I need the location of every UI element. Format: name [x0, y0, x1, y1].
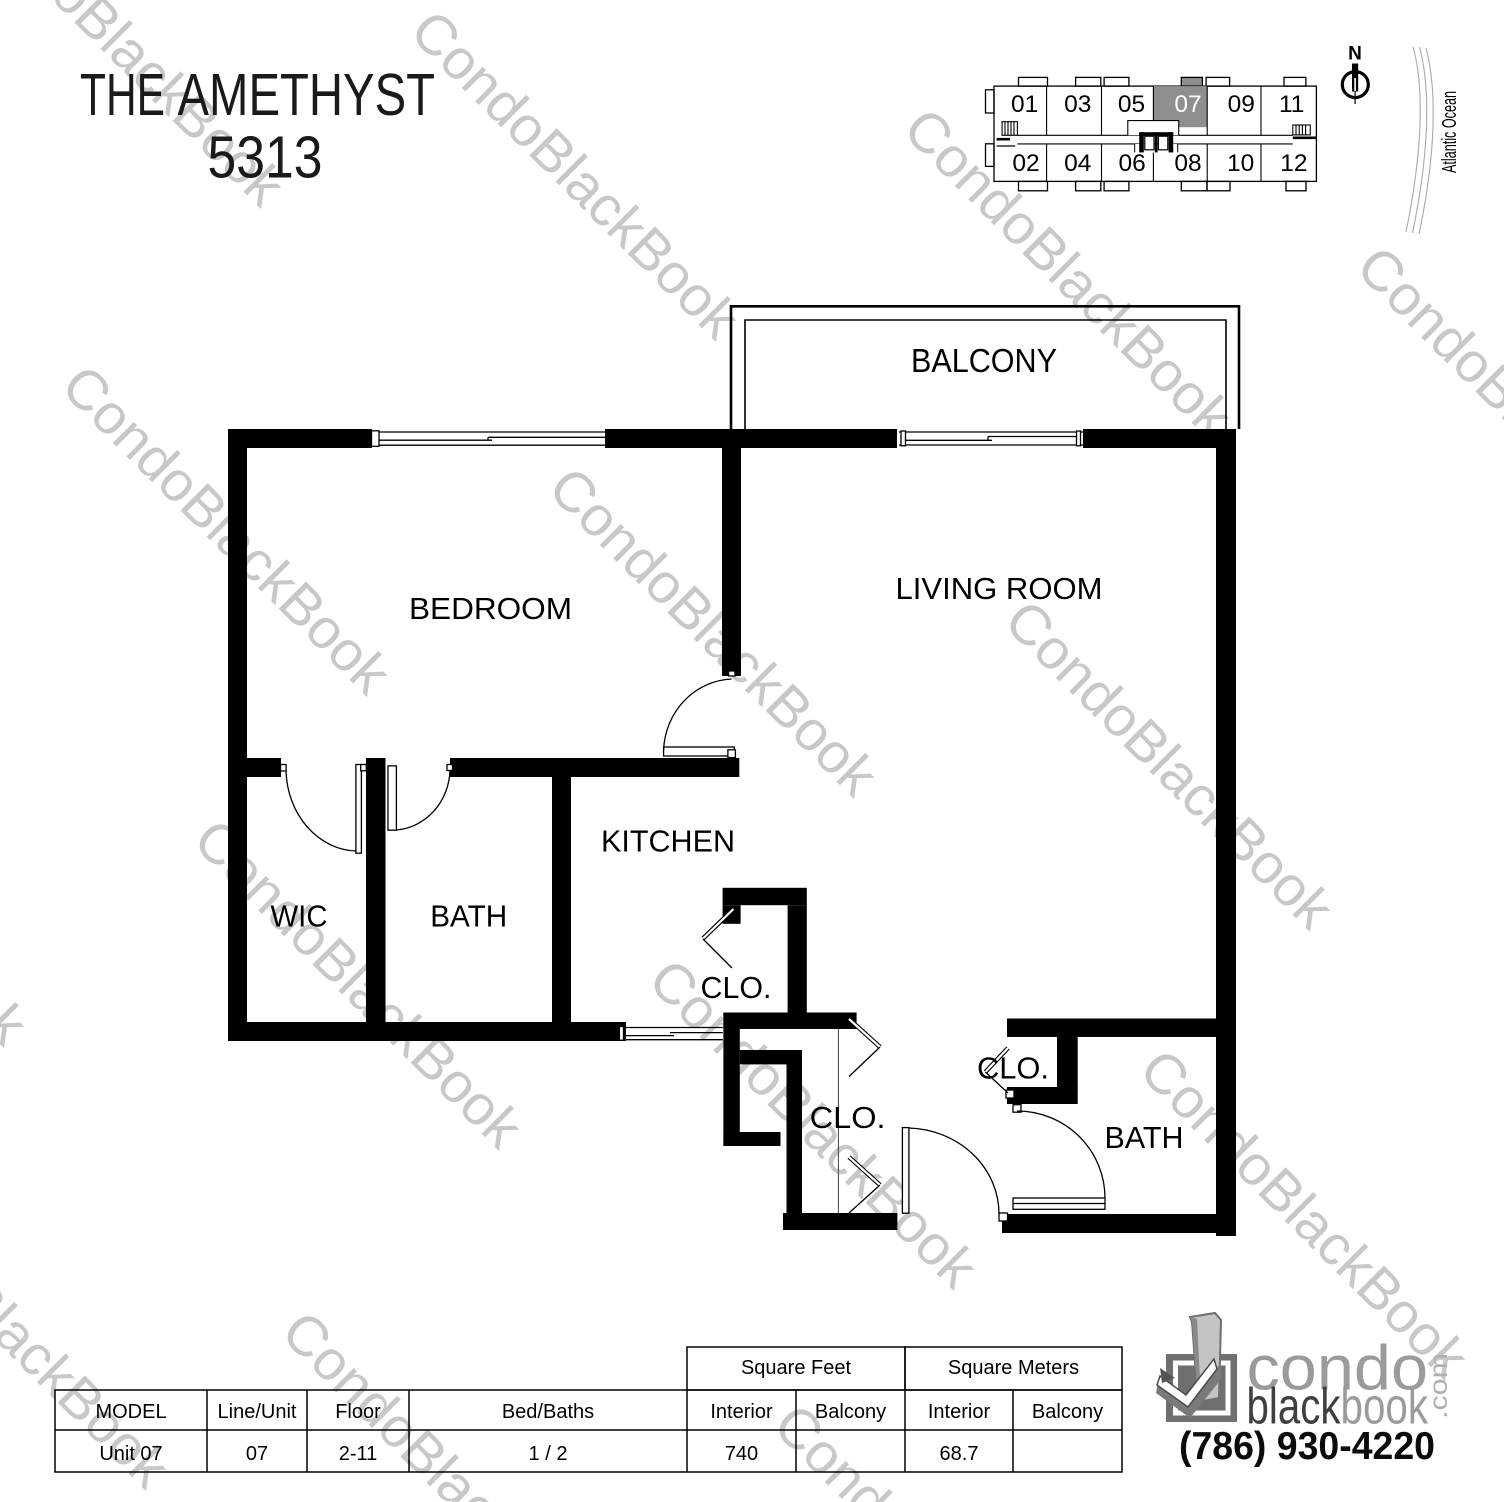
svg-text:01: 01: [1011, 91, 1038, 118]
svg-text:AMETHYST: AMETHYST: [178, 62, 436, 128]
svg-text:12: 12: [1280, 150, 1307, 177]
svg-text:Balcony: Balcony: [1032, 1401, 1103, 1423]
svg-text:THE: THE: [80, 62, 165, 128]
svg-text:11: 11: [1279, 91, 1304, 118]
svg-text:07: 07: [246, 1443, 268, 1465]
svg-text:CLO.: CLO.: [701, 970, 772, 1005]
svg-text:740: 740: [725, 1443, 758, 1465]
svg-text:06: 06: [1118, 150, 1145, 177]
svg-text:CLO.: CLO.: [977, 1051, 1049, 1086]
svg-text:04: 04: [1064, 150, 1091, 177]
svg-text:Atlantic Ocean: Atlantic Ocean: [1439, 91, 1461, 173]
svg-text:BEDROOM: BEDROOM: [409, 591, 572, 626]
svg-text:Unit 07: Unit 07: [99, 1443, 162, 1465]
svg-text:2-11: 2-11: [339, 1443, 378, 1465]
svg-text:Square Feet: Square Feet: [741, 1357, 852, 1379]
svg-text:BATH: BATH: [430, 899, 507, 934]
svg-text:MODEL: MODEL: [95, 1401, 166, 1423]
svg-text:.com: .com: [1425, 1353, 1453, 1419]
svg-text:LIVING ROOM: LIVING ROOM: [896, 571, 1103, 606]
svg-text:02: 02: [1012, 150, 1039, 177]
svg-text:BATH: BATH: [1105, 1120, 1184, 1155]
svg-text:(786) 930-4220: (786) 930-4220: [1179, 1425, 1435, 1468]
svg-text:CLO.: CLO.: [810, 1100, 886, 1135]
svg-text:08: 08: [1174, 150, 1201, 177]
svg-text:Balcony: Balcony: [815, 1401, 886, 1423]
svg-text:05: 05: [1118, 91, 1145, 118]
svg-text:07: 07: [1174, 91, 1201, 118]
svg-text:N: N: [1348, 43, 1362, 64]
svg-text:Line/Unit: Line/Unit: [218, 1401, 297, 1423]
svg-text:09: 09: [1228, 91, 1255, 118]
svg-text:03: 03: [1064, 91, 1091, 118]
svg-text:WIC: WIC: [271, 899, 328, 934]
svg-text:Interior: Interior: [710, 1401, 773, 1423]
svg-text:Square Meters: Square Meters: [948, 1357, 1079, 1379]
svg-text:1 / 2: 1 / 2: [529, 1443, 568, 1465]
svg-text:BALCONY: BALCONY: [911, 342, 1057, 379]
svg-text:KITCHEN: KITCHEN: [601, 823, 735, 858]
svg-text:5313: 5313: [208, 125, 323, 191]
svg-text:Bed/Baths: Bed/Baths: [502, 1401, 594, 1423]
svg-text:Floor: Floor: [335, 1401, 381, 1423]
svg-text:68.7: 68.7: [940, 1443, 979, 1465]
svg-text:Interior: Interior: [928, 1401, 991, 1423]
svg-text:10: 10: [1227, 150, 1254, 177]
